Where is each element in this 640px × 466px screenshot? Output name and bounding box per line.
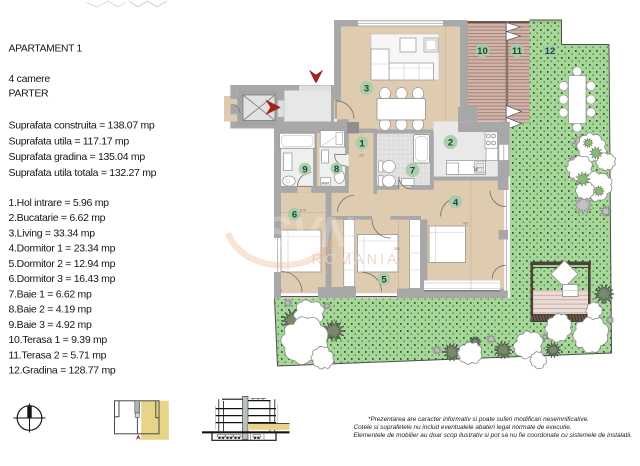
svg-text:Suprafata gradina = 135.04 mp: Suprafata gradina = 135.04 mp: [9, 151, 146, 163]
svg-text:4: 4: [453, 197, 459, 208]
svg-text:10: 10: [477, 46, 488, 57]
svg-text:2.Bucatarie = 6.62 mp: 2.Bucatarie = 6.62 mp: [9, 212, 106, 224]
svg-text:2: 2: [448, 137, 453, 148]
svg-text:PARTER: PARTER: [9, 88, 50, 100]
svg-text:300: 300: [394, 247, 400, 251]
svg-text:Elementele de mobilier au doar: Elementele de mobilier au doar scop ilus…: [354, 432, 633, 439]
svg-text:APARTAMENT 1: APARTAMENT 1: [9, 44, 83, 55]
svg-text:467: 467: [463, 222, 469, 226]
svg-text:6: 6: [292, 209, 297, 220]
svg-text:1: 1: [359, 138, 365, 149]
svg-text:Cotele si suprafetele nu inclu: Cotele si suprafetele nu includ eventual…: [354, 424, 572, 431]
svg-text:Suprafata utila totala = 132.2: Suprafata utila totala = 132.27 mp: [9, 167, 157, 179]
svg-text:3.Living = 33.34 mp: 3.Living = 33.34 mp: [9, 227, 96, 239]
svg-text:3: 3: [364, 83, 369, 94]
svg-text:7: 7: [410, 165, 415, 176]
svg-text:5.Dormitor 2 = 12.94 mp: 5.Dormitor 2 = 12.94 mp: [9, 258, 116, 270]
svg-text:8: 8: [334, 164, 340, 175]
svg-text:MSM: MSM: [322, 181, 330, 185]
svg-text:*Prezentarea are caracter info: *Prezentarea are caracter informativ si …: [368, 416, 589, 423]
svg-text:5: 5: [381, 274, 387, 285]
svg-text:12: 12: [545, 46, 556, 57]
svg-text:9.Baie 3 = 4.92 mp: 9.Baie 3 = 4.92 mp: [9, 319, 92, 331]
svg-text:4.Dormitor 1 = 23.34 mp: 4.Dormitor 1 = 23.34 mp: [9, 243, 116, 255]
svg-text:180: 180: [358, 154, 364, 158]
svg-text:SVN: SVN: [262, 208, 354, 257]
svg-text:9: 9: [302, 164, 307, 175]
svg-text:10.Terasa 1 = 9.39 mp: 10.Terasa 1 = 9.39 mp: [9, 334, 108, 346]
svg-text:8.Baie 2 = 4.19 mp: 8.Baie 2 = 4.19 mp: [9, 304, 92, 316]
svg-text:ROMANIA: ROMANIA: [312, 252, 400, 268]
svg-text:Suprafata utila = 117.17 mp: Suprafata utila = 117.17 mp: [9, 135, 130, 147]
svg-text:11: 11: [512, 46, 523, 57]
svg-text:Suprafata construita = 138.07: Suprafata construita = 138.07 mp: [9, 120, 155, 132]
svg-text:4 camere: 4 camere: [9, 73, 51, 85]
svg-text:12.Gradina = 128.77 mp: 12.Gradina = 128.77 mp: [9, 365, 116, 377]
svg-text:7.Baie 1 = 6.62 mp: 7.Baie 1 = 6.62 mp: [9, 288, 92, 300]
svg-text:1.Hol intrare = 5.96 mp: 1.Hol intrare = 5.96 mp: [9, 197, 110, 209]
svg-text:11.Terasa 2 = 5.71 mp: 11.Terasa 2 = 5.71 mp: [9, 349, 107, 361]
svg-text:6.Dormitor 3 = 16.43 mp: 6.Dormitor 3 = 16.43 mp: [9, 273, 116, 285]
